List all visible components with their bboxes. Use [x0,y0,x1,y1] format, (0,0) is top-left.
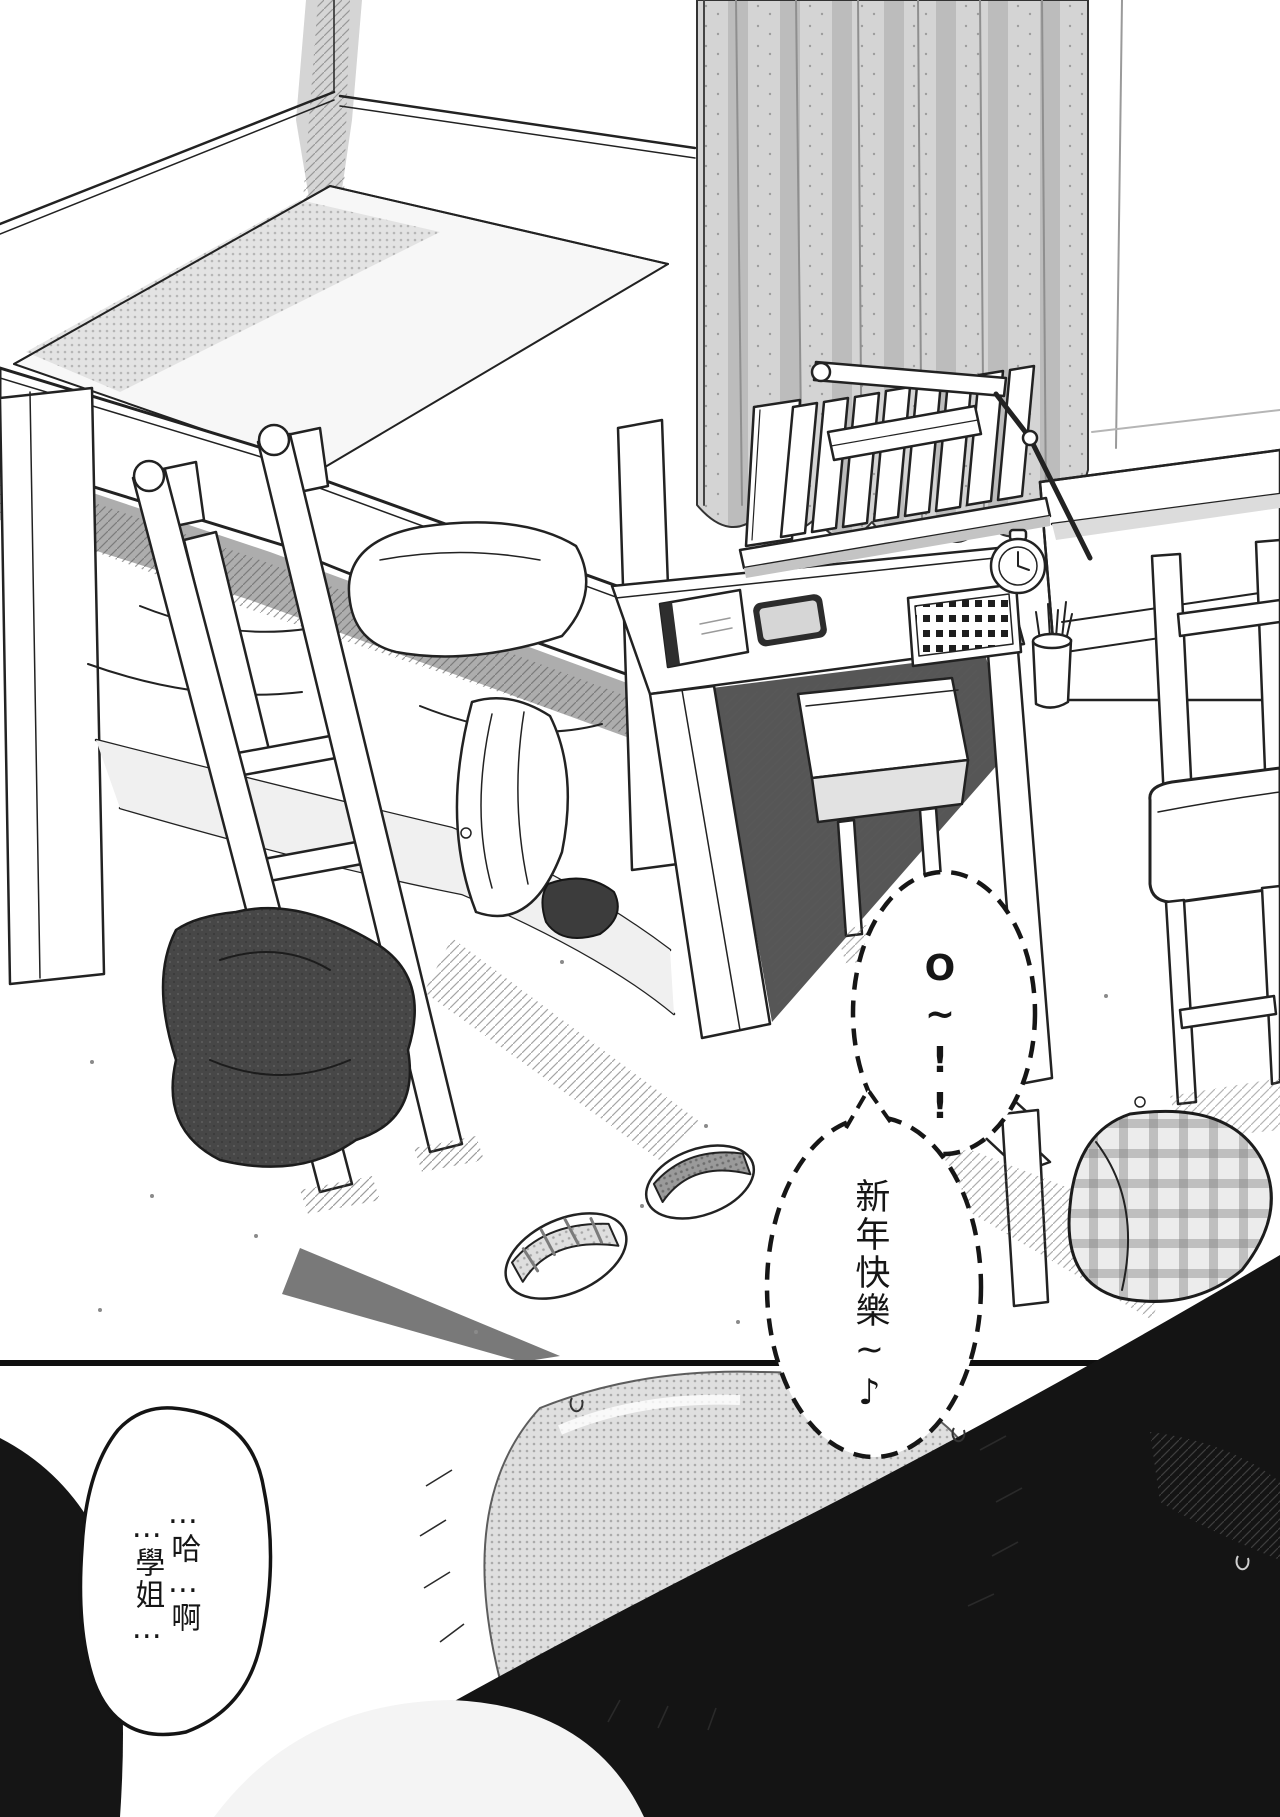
notebook [660,590,748,667]
bubble-greeting-text: 新年快樂~♪ [851,1178,887,1416]
speaker-grille [908,584,1021,666]
bubble-exclaim-text: O~!! [921,948,958,1132]
bubble-moan-column-right: …哈…啊 [167,1496,198,1648]
bed-post-left [0,388,104,984]
slipper-striped [492,1196,639,1316]
manga-page: O~!! 新年快樂~♪ …哈…啊 …學姐… [0,0,1280,1817]
bubble-moan-text: …哈…啊 …學姐… [126,1496,203,1648]
chair [1150,540,1280,1140]
plaid-cushion [1069,1111,1271,1301]
window-sill-line [1092,410,1280,432]
sweat-drop [1135,1097,1145,1107]
clothes-pile [163,908,415,1167]
bubble-moan-column-left: …學姐… [131,1496,162,1648]
wall-seam [1116,0,1122,448]
top-panel [0,0,1280,1362]
hair-tie [542,879,617,938]
bunk-bed-upper [0,186,700,760]
alarm-clock [991,530,1045,593]
